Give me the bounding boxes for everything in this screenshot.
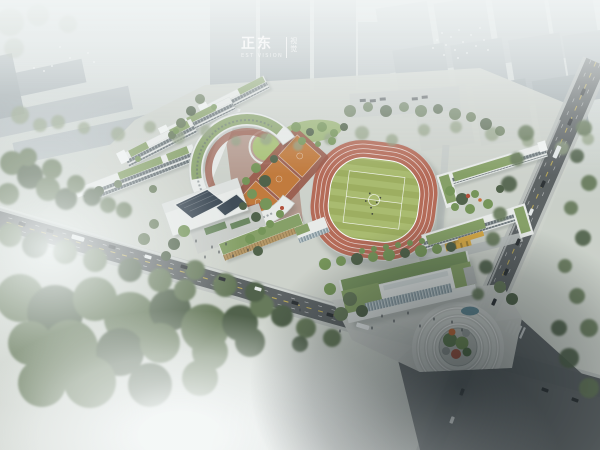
rock-garden-island [439, 328, 477, 366]
scene-graphics [0, 0, 600, 450]
water-feature [461, 307, 479, 316]
aerial-campus-rendering: 正东 EST VISION 视觉 [0, 0, 600, 450]
